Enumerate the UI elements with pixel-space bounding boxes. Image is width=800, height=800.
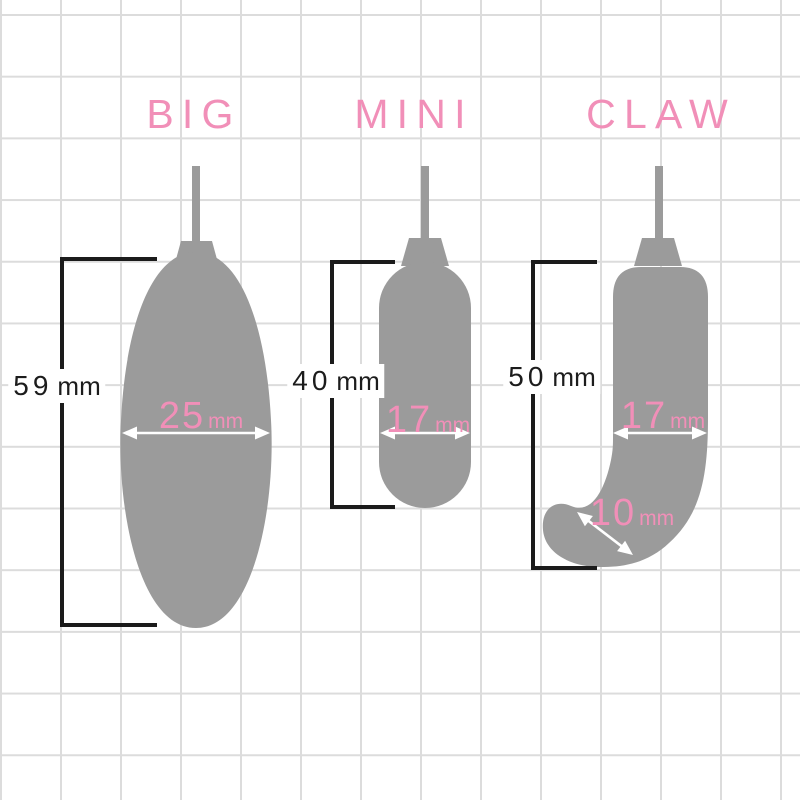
- width-value-big: 25: [159, 397, 205, 435]
- width-value-claw: 17: [621, 397, 667, 435]
- length-unit-big: mm: [57, 373, 100, 399]
- width-value-mini: 17: [386, 401, 432, 439]
- size-comparison-diagram: BIG MINI CLAW 59 mm 40 mm 50 mm 25 mm 17…: [0, 0, 800, 800]
- width-label-claw: 17 mm: [621, 397, 705, 435]
- length-label-big: 59 mm: [8, 369, 105, 403]
- length-label-mini: 40 mm: [287, 364, 384, 398]
- claw-cap: [634, 238, 682, 266]
- width-unit-mini: mm: [435, 415, 470, 436]
- product-mini-figure: [332, 166, 471, 508]
- big-egg-body: [120, 252, 271, 628]
- tip-width-label-claw: 10 mm: [590, 494, 674, 532]
- product-title-mini: MINI: [354, 94, 473, 135]
- claw-cord: [655, 166, 663, 242]
- length-unit-mini: mm: [336, 368, 379, 394]
- product-title-big: BIG: [146, 94, 241, 135]
- tip-width-unit-claw: mm: [639, 508, 674, 529]
- length-unit-claw: mm: [552, 364, 595, 390]
- big-cord: [192, 166, 200, 246]
- tip-width-value-claw: 10: [590, 494, 636, 532]
- length-label-claw: 50 mm: [503, 360, 600, 394]
- length-value-big: 59: [13, 372, 52, 400]
- product-title-claw: CLAW: [586, 94, 736, 135]
- width-label-mini: 17 mm: [386, 401, 470, 439]
- length-value-claw: 50: [508, 363, 547, 391]
- width-unit-claw: mm: [670, 411, 705, 432]
- mini-capsule-body: [379, 262, 471, 508]
- mini-cord: [421, 166, 429, 242]
- width-label-big: 25 mm: [159, 397, 243, 435]
- mini-cap: [401, 238, 449, 266]
- length-value-mini: 40: [292, 367, 331, 395]
- width-unit-big: mm: [208, 411, 243, 432]
